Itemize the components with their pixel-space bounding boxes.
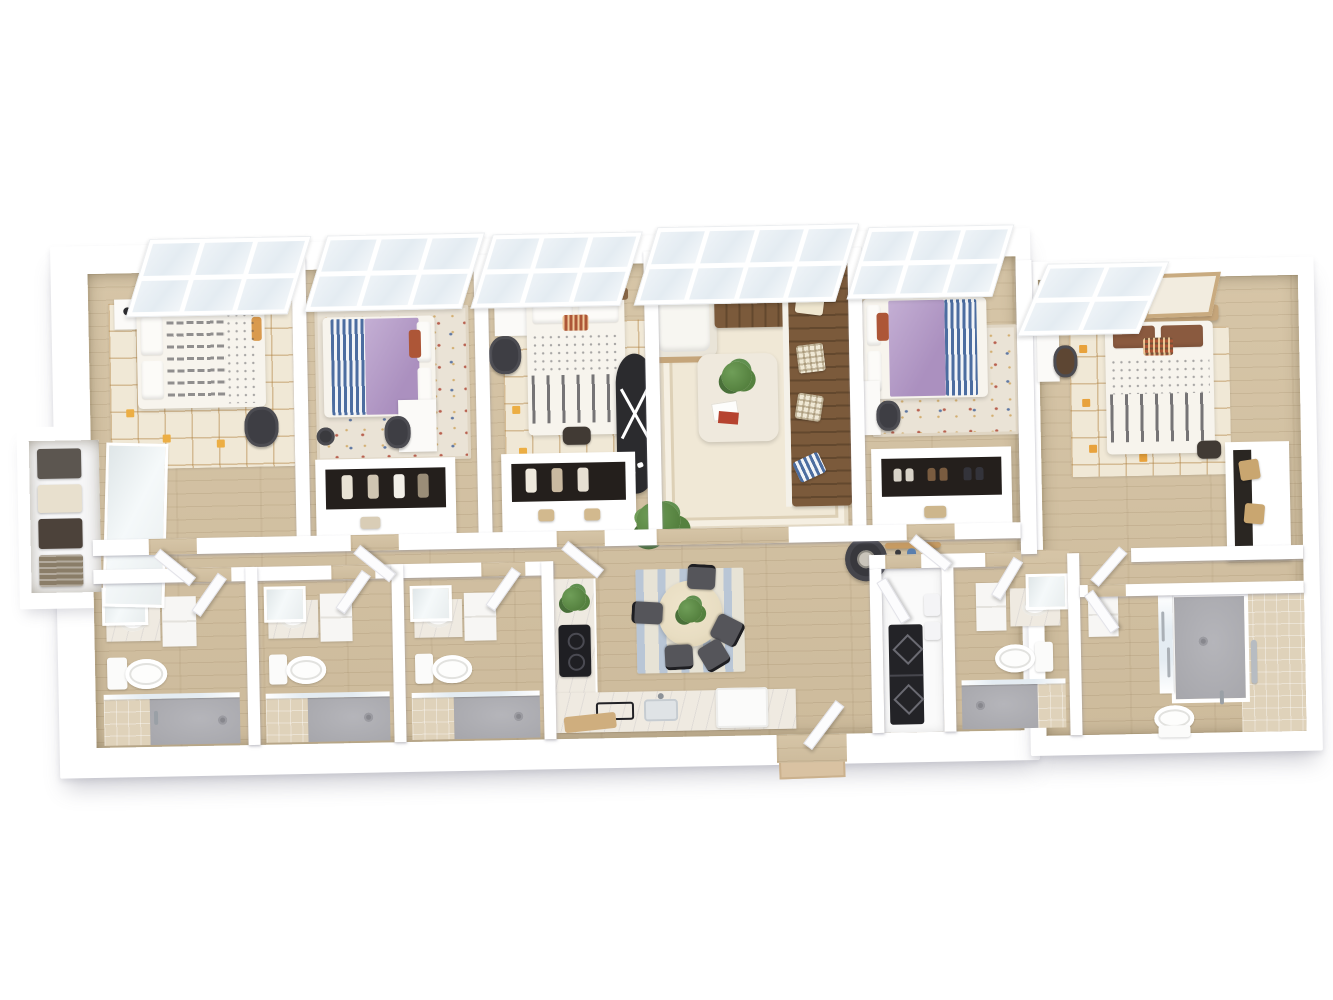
- hanging-clothes: [393, 474, 404, 498]
- window-pane: [525, 272, 577, 303]
- cooktop-burner: [568, 654, 585, 671]
- storage-box: [1238, 458, 1261, 481]
- bedroom3-closet: [501, 452, 637, 535]
- bed-duvet-dots: [224, 311, 260, 404]
- hanging-clothes: [341, 475, 352, 499]
- rug-accent-orange: [1139, 454, 1147, 462]
- hand-shower: [1220, 690, 1224, 704]
- backpack: [1197, 440, 1221, 458]
- window-pane: [487, 238, 539, 269]
- shoes: [927, 468, 935, 481]
- window-pane: [799, 228, 853, 261]
- window-pane: [310, 275, 365, 307]
- window-pane: [321, 240, 376, 272]
- window-pane: [863, 231, 914, 260]
- window-pane: [689, 267, 743, 300]
- window-pane: [1083, 300, 1149, 330]
- bedroom4-bay-window: [846, 224, 1014, 299]
- rust-accent-pillow: [876, 313, 889, 341]
- kitchen-counter-bottom: [556, 689, 797, 734]
- cooktop: [558, 625, 591, 678]
- bathroom3-toilet-tank: [415, 654, 434, 684]
- window-pane: [1038, 268, 1104, 298]
- hanging-clothes: [551, 468, 562, 492]
- bathroom4-shower-tile: [1038, 683, 1067, 728]
- shower-door-handle: [1161, 611, 1165, 641]
- purple-duvet: [888, 300, 946, 397]
- blue-striped-blanket: [944, 299, 978, 396]
- storage-box: [1244, 503, 1266, 525]
- storage-basket: [37, 448, 82, 479]
- window-pane: [372, 239, 427, 271]
- rug-accent: [163, 435, 171, 443]
- shoes: [963, 467, 971, 480]
- storage-basket: [38, 518, 83, 549]
- window-pane: [477, 273, 529, 304]
- bathroom2-shower-tray: [308, 696, 391, 742]
- bedroom5-bed: [1105, 321, 1216, 455]
- patterned-accent-pillow: [562, 314, 588, 330]
- shoes: [893, 469, 901, 482]
- bathroom2-shower-tile: [266, 698, 309, 743]
- window-pane: [1097, 266, 1163, 296]
- storage-basket: [38, 484, 83, 513]
- floorplan-stage: [0, 0, 1333, 1000]
- apartment-plan: [0, 0, 1333, 1000]
- bedroom4-desk-chair: [876, 401, 901, 431]
- throw-pillow-checkered: [794, 392, 824, 422]
- shoes: [905, 468, 913, 481]
- dryer-door-highlight: [893, 684, 924, 715]
- sink-faucet: [658, 693, 664, 699]
- hanging-clothes: [367, 475, 378, 499]
- bathroom4-mirror: [1025, 573, 1068, 610]
- bathroom3-shower-tray: [454, 695, 541, 739]
- patterned-accent-pillow: [1143, 337, 1173, 356]
- window-pane: [957, 229, 1008, 258]
- dining-chair: [631, 601, 663, 625]
- window-pane: [640, 268, 694, 301]
- window-pane: [536, 237, 588, 268]
- bedroom1-desk-chair: [244, 406, 279, 447]
- cutting-board: [564, 712, 617, 733]
- bed-duvet-dots: [531, 332, 622, 376]
- window-pane: [143, 243, 200, 276]
- rug-accent-orange: [1089, 445, 1097, 453]
- window-pane: [196, 242, 253, 275]
- hanging-clothes: [525, 469, 536, 493]
- shower-drain: [218, 715, 227, 724]
- rust-accent-pillow: [409, 330, 422, 358]
- bedroom5-storage-closet: [1225, 441, 1291, 560]
- window-pane: [910, 230, 961, 259]
- shoes: [975, 467, 983, 480]
- bed-pillow: [141, 361, 164, 399]
- utility-wall-cabinet: [924, 594, 940, 616]
- bedroom2-bay-window: [304, 232, 485, 311]
- rug-accent-orange: [1082, 399, 1090, 407]
- window-pane: [584, 237, 636, 268]
- hanging-clothes: [417, 474, 428, 498]
- window-pane: [132, 280, 189, 313]
- dishwasher: [716, 687, 769, 728]
- throw-pillow-checkered: [796, 343, 826, 374]
- washer-dryer-stack: [888, 624, 924, 725]
- bathroom3-mirror: [410, 585, 453, 622]
- bed-duvet-dots: [1109, 357, 1210, 395]
- dining-chair: [664, 644, 693, 670]
- window-pane: [651, 231, 705, 264]
- blue-striped-blanket: [330, 319, 366, 416]
- bathroom2-mirror: [264, 586, 307, 623]
- bathroom4-shower-tray: [962, 684, 1039, 729]
- window-pane: [573, 271, 625, 302]
- bedroom4-bed: [862, 297, 988, 399]
- bathroom4-toilet-tank: [1035, 642, 1054, 672]
- window-pane: [853, 265, 904, 294]
- rug-accent: [512, 406, 520, 414]
- window-pane: [237, 278, 294, 311]
- window-pane: [248, 241, 305, 274]
- bed-duvet-stripes: [532, 374, 623, 424]
- window-pane: [412, 273, 467, 305]
- hanging-clothes: [577, 468, 588, 492]
- window-pane: [750, 229, 804, 262]
- living-room-bay-window: [634, 223, 860, 305]
- bedroom3-bay-window: [470, 231, 643, 308]
- bedroom1-bed: [136, 307, 266, 409]
- rug-accent: [126, 409, 134, 417]
- rug-accent-orange: [1079, 345, 1087, 353]
- bed-pillow: [140, 317, 163, 355]
- storage-basket: [39, 554, 84, 587]
- window-pane: [701, 230, 755, 263]
- window-pane: [1024, 301, 1090, 331]
- window-pane: [788, 265, 842, 298]
- window-pane: [423, 238, 478, 270]
- bathroom5-shower-tray: [1170, 592, 1250, 703]
- closet-shelf-item: [584, 508, 600, 520]
- grab-bar: [1251, 640, 1258, 684]
- rug-accent: [217, 439, 225, 447]
- closet-shelf-item: [538, 509, 554, 521]
- console-butterfly-decal: [637, 462, 644, 469]
- magazine-red: [718, 411, 739, 425]
- bathroom5-toilet-tank: [1158, 725, 1190, 738]
- shower-door-handle: [1167, 647, 1171, 677]
- bathroom5-tile-floor: [1240, 587, 1307, 732]
- bathroom3-shower-tile: [412, 697, 455, 740]
- bedroom2-desk-chair: [384, 416, 411, 448]
- bathroom1-cabinet: [162, 596, 197, 647]
- closet-shelf-item: [924, 506, 946, 518]
- washer-door-highlight: [892, 634, 923, 665]
- window-pane: [185, 279, 242, 312]
- bedroom3-bed: [526, 292, 627, 436]
- living-room-opening: [657, 527, 789, 546]
- cooktop-burner: [568, 633, 585, 650]
- bedroom2-closet: [315, 457, 457, 544]
- kitchen-sink: [644, 699, 678, 722]
- window-pane: [361, 274, 416, 306]
- bathroom2-toilet-tank: [269, 654, 288, 684]
- utility-wall-cabinet: [924, 622, 940, 640]
- window-pane: [739, 266, 793, 299]
- bed-duvet-stripes: [1110, 393, 1211, 443]
- bathroom1-shower-tile: [104, 699, 151, 746]
- bed-duvet-dashes: [166, 311, 226, 404]
- closet-shelf-item: [360, 517, 380, 529]
- window-pane: [947, 263, 998, 292]
- bedroom3-desk-chair: [489, 336, 522, 375]
- shower-drain: [364, 713, 373, 722]
- shower-glass-doors: [1158, 595, 1174, 693]
- dryer-panel: [889, 674, 923, 677]
- utility-door-opening: [885, 554, 921, 569]
- coffee-table: [697, 353, 779, 443]
- dining-chair: [687, 564, 716, 590]
- hand-shower: [154, 711, 158, 725]
- bedroom5-desk-chair: [1053, 345, 1078, 377]
- backpack: [563, 426, 591, 445]
- coffee-table-plant: [721, 361, 752, 392]
- window-pane: [900, 264, 951, 293]
- bedroom1-bay-window: [126, 236, 312, 318]
- shoes: [939, 468, 947, 481]
